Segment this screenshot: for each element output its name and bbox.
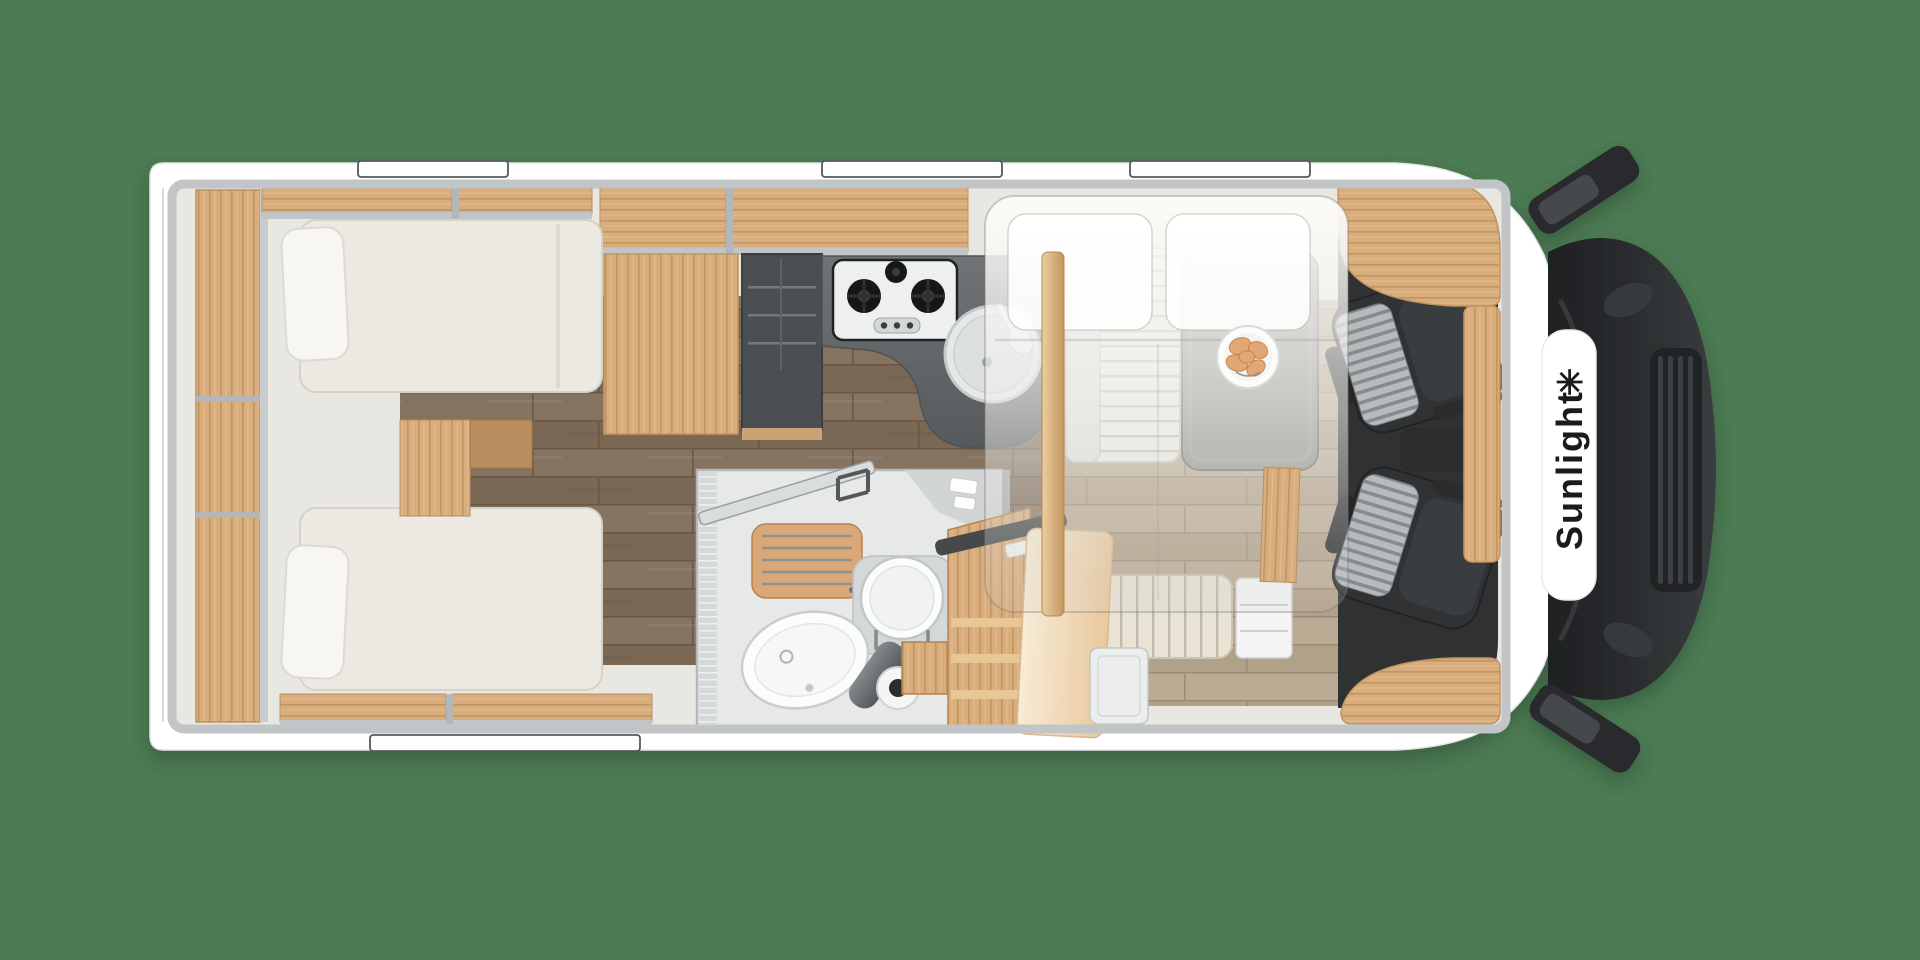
toilet: [853, 556, 953, 654]
floorplan-stage: Sunlight ✳: [0, 0, 1920, 960]
tall-fridge-cabinet: [742, 254, 822, 440]
bed-pillow-bottom: [281, 545, 350, 680]
drop-down-bed-pillow-left: [1008, 214, 1152, 330]
window-bottom-1: [370, 735, 640, 751]
bed-support-pillar: [1042, 252, 1064, 616]
rear-shelf-lip: [260, 190, 268, 722]
bed-foot-cabinet: [604, 254, 738, 434]
rear-shelf-divider-2: [196, 512, 260, 518]
side-mirror-top: [1523, 141, 1644, 239]
brand-wordmark: Sunlight: [1549, 390, 1590, 550]
entry-step-well: [1090, 648, 1148, 724]
floorplan-svg: Sunlight ✳: [0, 0, 1920, 960]
drop-down-bed-pillow-right: [1166, 214, 1310, 330]
breakfast-plate: [1217, 326, 1279, 388]
window-top-1: [358, 161, 508, 177]
single-bed-top: [281, 220, 602, 392]
rear-shelf-divider-1: [196, 396, 260, 402]
bed-pillow-top: [281, 226, 350, 361]
window-top-2: [822, 161, 1002, 177]
mattress-seam: [556, 224, 560, 388]
single-bed-bottom: [281, 508, 602, 690]
window-top-3: [1130, 161, 1310, 177]
bathroom-cabinet: [902, 642, 952, 694]
front-grille: [1650, 348, 1702, 592]
brand-logo-group: Sunlight ✳: [1549, 368, 1590, 550]
rear-wall-shelf: [196, 190, 260, 722]
cab-center-console: [1400, 428, 1474, 472]
gas-hob-3-burner: [833, 260, 957, 340]
shower-grate: [752, 524, 862, 598]
table-leg-panel: [1260, 467, 1300, 582]
bottom-lockers: [280, 694, 652, 727]
